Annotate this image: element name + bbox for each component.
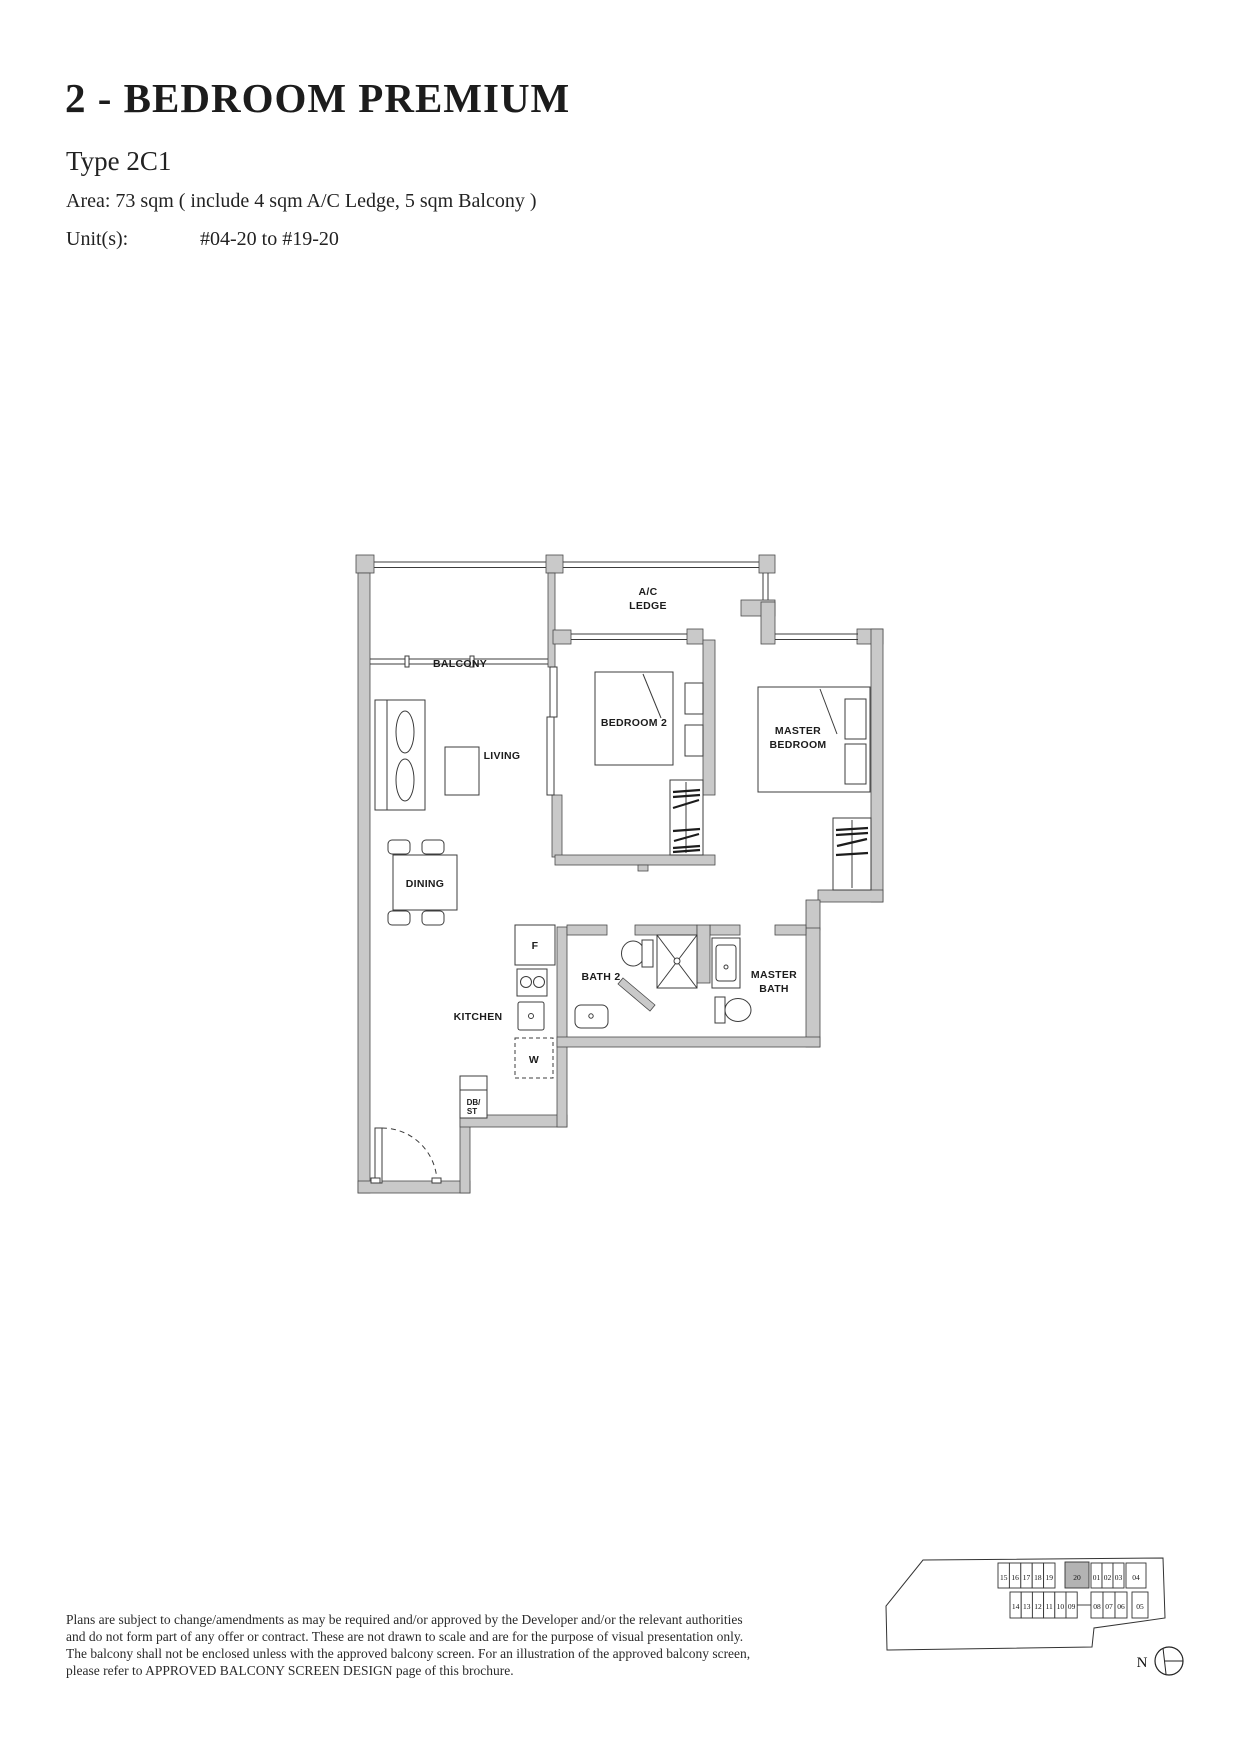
- shower-divider-wall: [697, 925, 710, 983]
- room-label-living: LIVING: [484, 750, 521, 762]
- keyplan-unit-number: 12: [1034, 1602, 1042, 1611]
- living-furniture: [375, 700, 479, 925]
- dining-chair: [422, 911, 444, 925]
- pillow: [845, 744, 866, 784]
- door-leaf: [375, 1128, 382, 1183]
- pillar: [356, 555, 374, 573]
- units-value: #04-20 to #19-20: [200, 228, 339, 251]
- keyplan-unit-number: 02: [1104, 1573, 1112, 1582]
- units-label: Unit(s):: [66, 228, 128, 250]
- sink-drain: [529, 1014, 534, 1019]
- toilet-tank: [642, 940, 653, 967]
- area-line: Area: 73 sqm ( include 4 sqm A/C Ledge, …: [66, 190, 536, 213]
- disclaimer-line: please refer to APPROVED BALCONY SCREEN …: [66, 1662, 766, 1679]
- room-label-master-bath: MASTER: [751, 969, 797, 981]
- room-label-balcony: BALCONY: [433, 658, 487, 670]
- bath-top-wall: [635, 925, 697, 935]
- toilet-bowl: [725, 999, 751, 1022]
- room-label-bath2: BATH 2: [582, 971, 621, 983]
- room-label-bedroom2: BEDROOM 2: [601, 717, 667, 729]
- dining-chair: [388, 840, 410, 854]
- keyplan-svg: 15 16 17 18 19 20 01 02 03 04 14 13: [880, 1540, 1220, 1710]
- floorplan-svg: BALCONY A/C LEDGE LIVING DINING BEDROOM …: [350, 550, 890, 1200]
- master-bedroom-furniture: [758, 687, 871, 890]
- pillar: [759, 555, 775, 573]
- kitchen-right-wall: [557, 927, 567, 1127]
- keyplan-unit-number: 15: [1000, 1573, 1008, 1582]
- room-label-master-bedroom: MASTER: [775, 725, 821, 737]
- ledge-corner: [553, 630, 571, 644]
- keyplan-unit-number: 04: [1132, 1573, 1140, 1582]
- bedroom2-door-leaf: [547, 717, 554, 795]
- fixture-label-db-st: ST: [467, 1107, 477, 1116]
- bath-right-wall: [806, 928, 820, 1047]
- step-wall: [806, 900, 820, 930]
- keyplan-unit-number: 08: [1093, 1602, 1101, 1611]
- north-compass: N: [1137, 1647, 1183, 1675]
- toilet-bowl: [622, 941, 645, 966]
- keyplan-unit-number: 06: [1117, 1602, 1125, 1611]
- keyplan-unit-number: 05: [1136, 1602, 1144, 1611]
- disclaimer-line: The balcony shall not be enclosed unless…: [66, 1645, 766, 1662]
- right-wall: [871, 629, 883, 902]
- wall-junction: [687, 629, 703, 644]
- bath-bottom-wall: [557, 1037, 820, 1047]
- brochure-page: 2 - BEDROOM PREMIUM Type 2C1 Area: 73 sq…: [0, 0, 1241, 1755]
- stove-burner: [521, 977, 532, 988]
- page-title: 2 - BEDROOM PREMIUM: [65, 74, 570, 122]
- sofa-cushion: [396, 759, 414, 801]
- sink-drain: [724, 965, 728, 969]
- disclaimer-text: Plans are subject to change/amendments a…: [66, 1611, 766, 1679]
- keyplan-unit-number: 14: [1012, 1602, 1020, 1611]
- room-label-dining: DINING: [406, 878, 445, 890]
- bath2-chamfer-wall: [618, 978, 655, 1011]
- units-row: Unit(s): #04-20 to #19-20: [66, 228, 128, 251]
- disclaimer-line: Plans are subject to change/amendments a…: [66, 1611, 766, 1628]
- bedside-table: [685, 683, 703, 714]
- keyplan-unit-number: 10: [1057, 1602, 1065, 1611]
- room-label-ac-ledge: A/C: [639, 586, 658, 598]
- room-label-master-bath: BATH: [759, 983, 789, 995]
- keyplan-unit-number: 16: [1011, 1573, 1019, 1582]
- fixture-label-fridge: F: [532, 940, 539, 952]
- keyplan-unit-number: 03: [1115, 1573, 1123, 1582]
- pillar: [546, 555, 563, 573]
- keyplan-unit-number: 20: [1073, 1573, 1081, 1582]
- room-label-ac-ledge: LEDGE: [629, 600, 667, 612]
- keyplan-row1: 15 16 17 18 19 20 01 02 03 04: [998, 1562, 1146, 1588]
- left-wall: [358, 573, 370, 1193]
- room-label-master-bedroom: BEDROOM: [770, 739, 827, 751]
- stove-burner: [534, 977, 545, 988]
- pillow: [845, 699, 866, 739]
- sofa-cushion: [396, 711, 414, 753]
- keyplan-unit-number: 07: [1105, 1602, 1113, 1611]
- keyplan-unit-number: 19: [1046, 1573, 1054, 1582]
- window-mullion: [405, 656, 409, 667]
- disclaimer-line: and do not form part of any offer or con…: [66, 1628, 766, 1645]
- keyplan: 15 16 17 18 19 20 01 02 03 04 14 13: [880, 1540, 1220, 1710]
- toilet-tank: [715, 997, 725, 1023]
- keyplan-row2: 14 13 12 11 10 09 08 07 06 05: [1010, 1592, 1148, 1618]
- dining-chair: [422, 840, 444, 854]
- shower-drain: [674, 958, 680, 964]
- fixture-label-washer: W: [529, 1054, 539, 1066]
- door-frame: [371, 1178, 380, 1183]
- room-label-kitchen: KITCHEN: [454, 1011, 503, 1023]
- wall-tick: [638, 865, 648, 871]
- balcony-divider-wall: [548, 573, 555, 667]
- sink-drain: [589, 1014, 593, 1018]
- door-frame: [432, 1178, 441, 1183]
- bedroom-divider-wall: [703, 640, 715, 795]
- fixture-label-db-st: DB/: [467, 1098, 482, 1107]
- bedside-table: [685, 725, 703, 756]
- plan-top-edge: [356, 555, 775, 573]
- dining-chair: [388, 911, 410, 925]
- bedroom2-left-wall: [552, 795, 562, 857]
- ledge-notch-post: [761, 602, 775, 644]
- keyplan-unit-number: 13: [1023, 1602, 1031, 1611]
- unit-type-label: Type 2C1: [66, 146, 171, 177]
- door-swing-arc: [382, 1128, 437, 1183]
- floorplan: BALCONY A/C LEDGE LIVING DINING BEDROOM …: [350, 550, 890, 1200]
- master-sink: [716, 945, 736, 981]
- keyplan-unit-number: 01: [1093, 1573, 1101, 1582]
- coffee-table: [445, 747, 479, 795]
- keyplan-unit-number: 11: [1046, 1602, 1053, 1611]
- keyplan-unit-number: 17: [1023, 1573, 1031, 1582]
- keyplan-unit-number: 18: [1034, 1573, 1042, 1582]
- bath-top-wall: [775, 925, 806, 935]
- entry-door: [371, 1128, 441, 1183]
- bedroom2-furniture: [547, 667, 703, 855]
- master-bottom-wall: [818, 890, 883, 902]
- keyplan-unit-number: 09: [1068, 1602, 1076, 1611]
- north-label: N: [1137, 1655, 1148, 1671]
- thin-wall: [550, 667, 557, 717]
- bath-top-wall: [710, 925, 740, 935]
- room-labels: BALCONY A/C LEDGE LIVING DINING BEDROOM …: [406, 586, 827, 1116]
- bedroom2-bottom-wall: [555, 855, 715, 865]
- bath-top-wall: [567, 925, 607, 935]
